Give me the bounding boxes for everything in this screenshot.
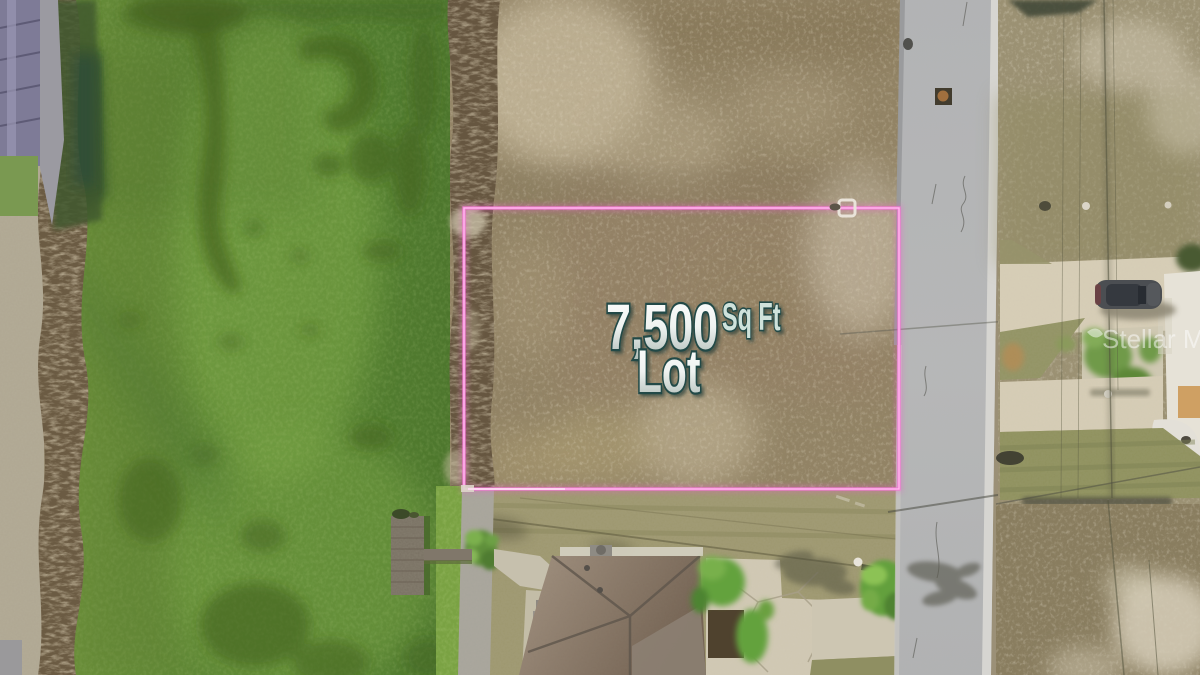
svg-text:Lot: Lot xyxy=(637,338,700,405)
svg-text:Stellar MLS: Stellar MLS xyxy=(1102,324,1200,354)
svg-text:Sq Ft: Sq Ft xyxy=(722,295,781,339)
